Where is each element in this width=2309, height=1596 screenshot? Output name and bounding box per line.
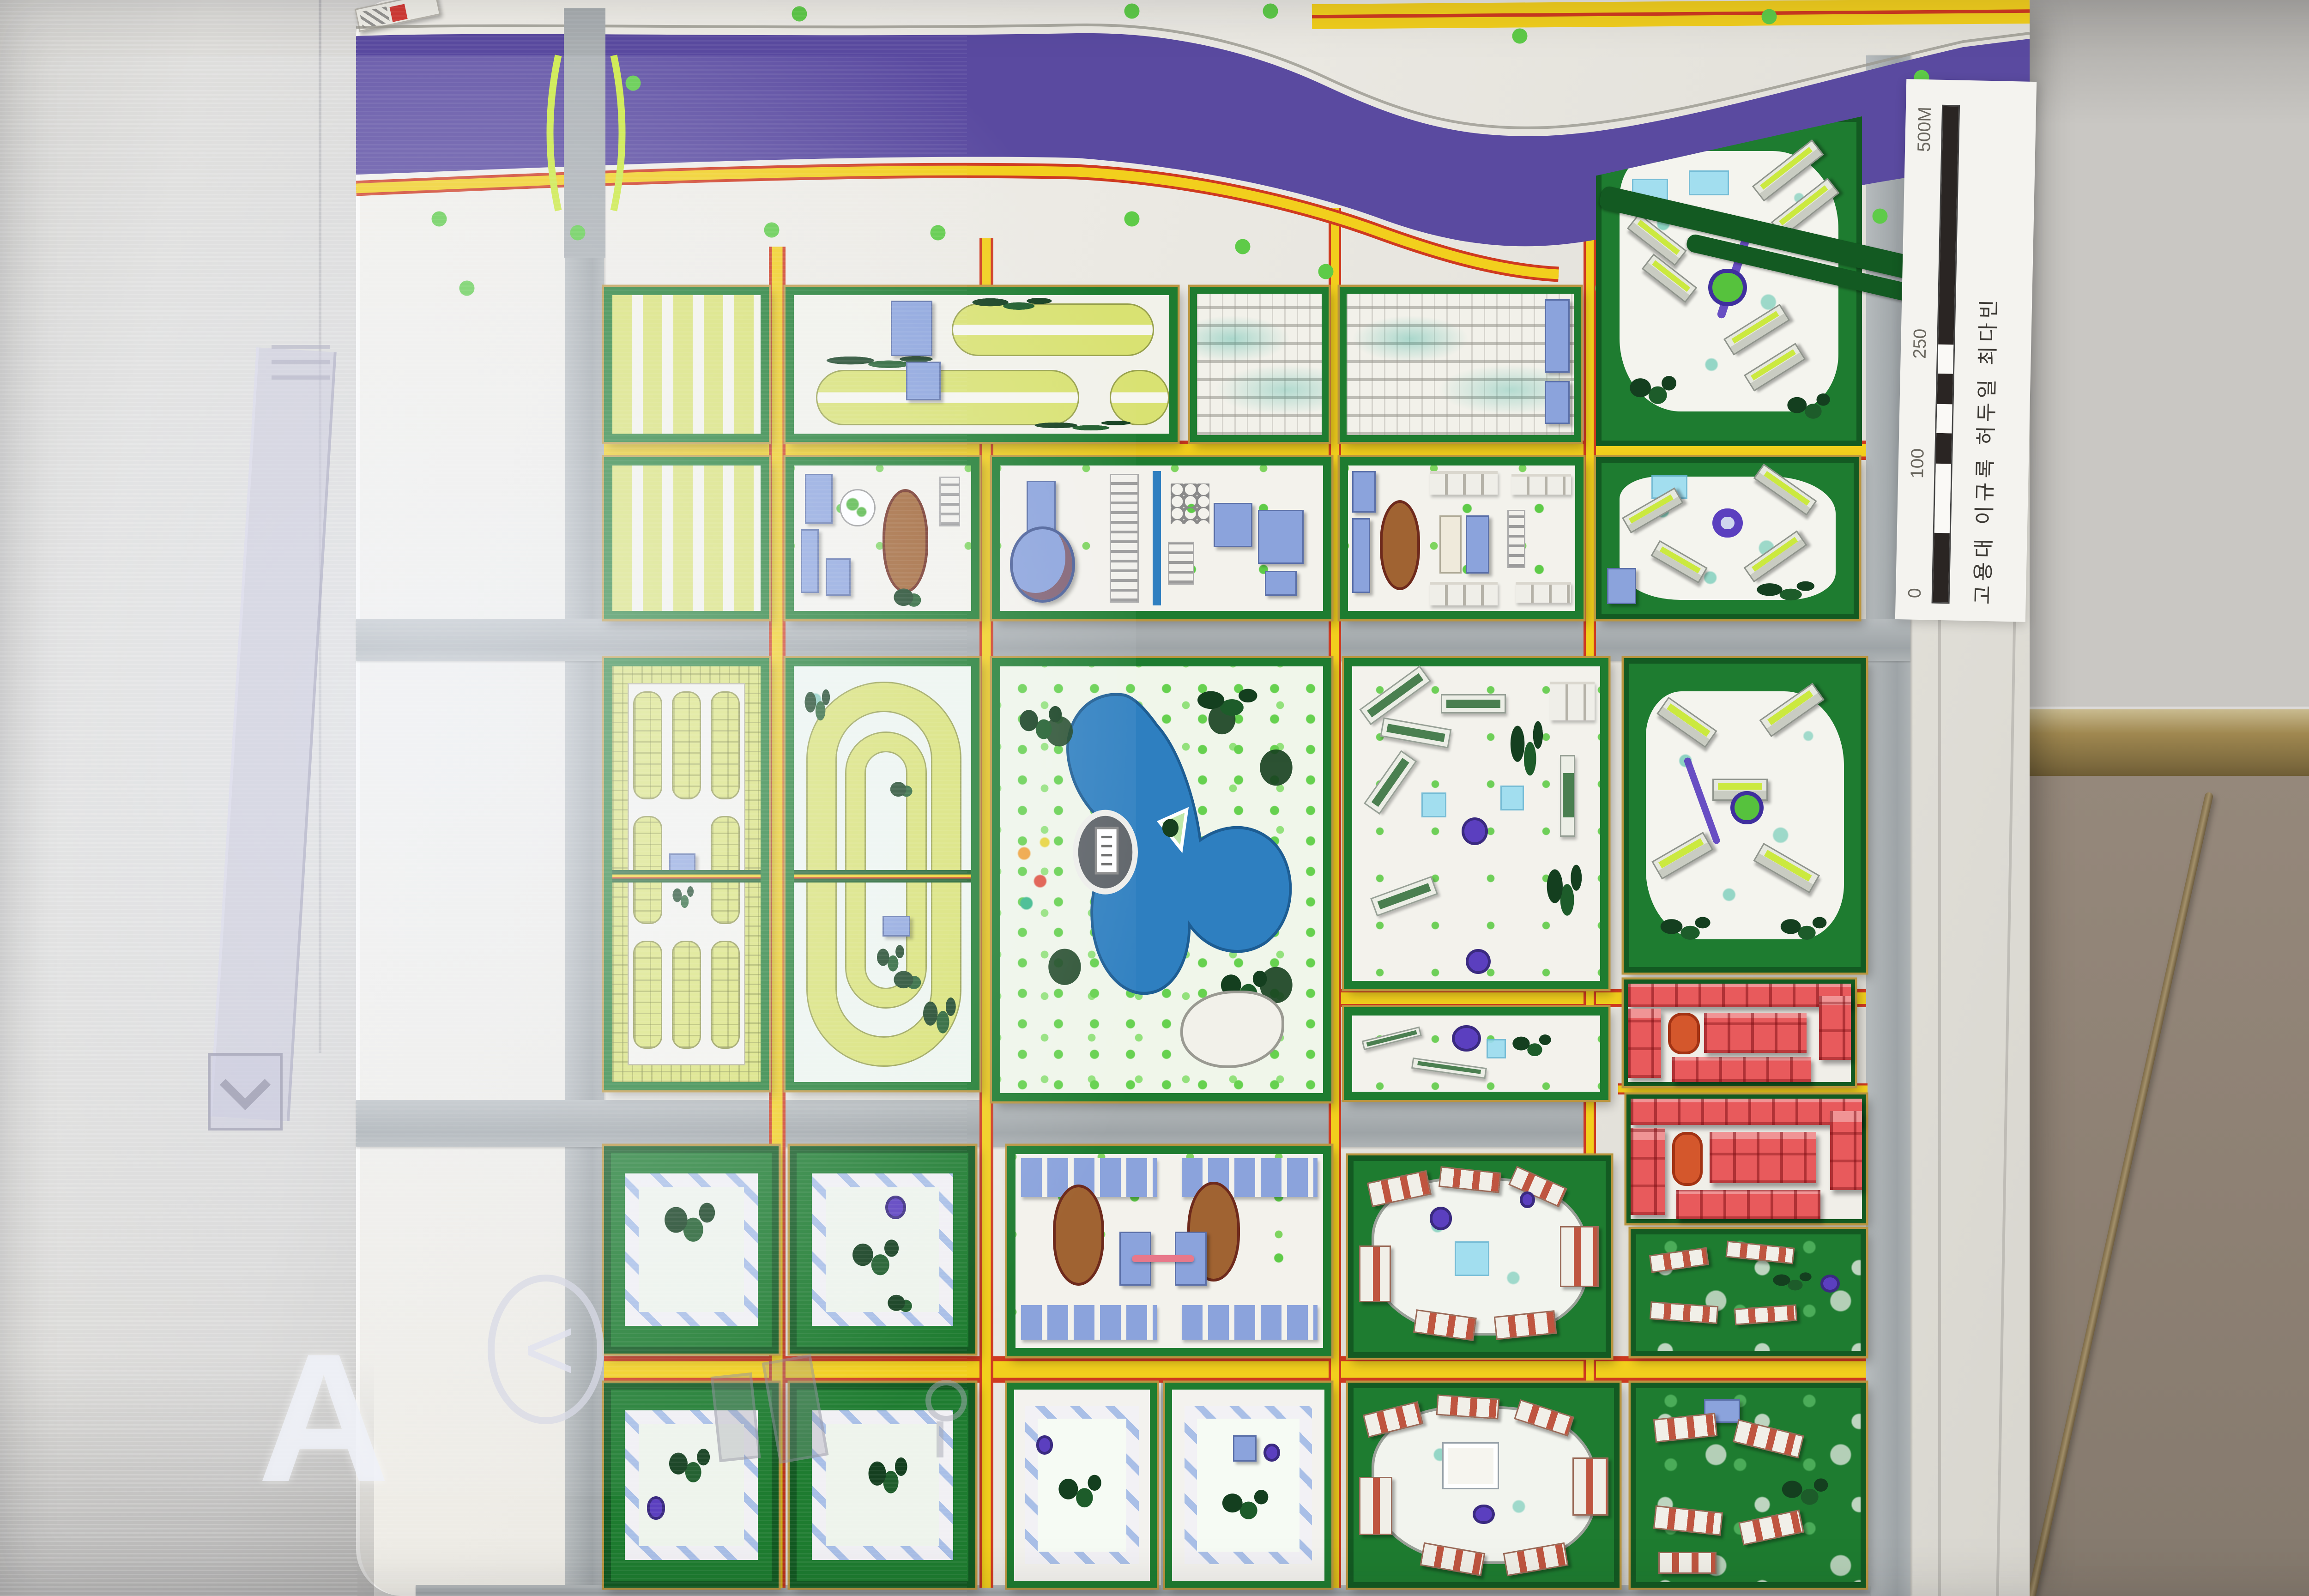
rs-feature — [1413, 1310, 1476, 1341]
rs-feature — [1649, 1302, 1717, 1325]
pdonut-feature — [1712, 508, 1742, 538]
central-park — [992, 658, 1331, 1101]
blue-feature — [1353, 518, 1371, 593]
trees-feature — [1775, 1474, 1838, 1516]
trees-feature — [1506, 1031, 1560, 1064]
rowsm-feature — [1430, 582, 1498, 605]
gslab-feature — [1371, 876, 1438, 916]
bottom-shadow — [0, 1358, 374, 1596]
trees-feature — [669, 883, 698, 916]
loop-feature — [816, 370, 1079, 425]
brown-feature — [1380, 501, 1421, 591]
rs-feature — [1653, 1412, 1718, 1442]
gslab-feature — [1359, 665, 1430, 724]
lavender-court-a — [1007, 1383, 1157, 1588]
islet-tree — [1163, 819, 1179, 837]
ave-row4 — [604, 1356, 1866, 1383]
trees-feature — [1622, 370, 1688, 415]
scale-bar-segment — [1937, 374, 1953, 404]
pdot-feature — [1820, 1274, 1840, 1293]
rs-feature — [1359, 1245, 1391, 1302]
hatchv-feature — [1168, 541, 1194, 585]
blue-feature — [826, 559, 851, 597]
cubebar-feature — [1709, 1132, 1815, 1183]
hatchv-feature — [939, 477, 961, 526]
blue-feature — [804, 474, 833, 524]
pdot-feature — [1520, 1191, 1535, 1209]
blue-feature — [891, 301, 932, 356]
cubebar-feature — [1673, 1057, 1811, 1082]
trees-feature — [801, 683, 836, 733]
blue-feature — [1466, 515, 1489, 573]
rs-feature — [1362, 1401, 1423, 1438]
hedge-feature — [612, 870, 761, 883]
pdot-feature — [647, 1497, 666, 1520]
racetrack-loop — [786, 658, 979, 1090]
roadside-tree-cluster — [885, 776, 924, 806]
lavender-court-b — [1165, 1383, 1331, 1588]
opad-feature — [1668, 1013, 1699, 1054]
rowhouse-district-a — [1190, 287, 1329, 442]
redstripe-loop-a — [1348, 1155, 1611, 1358]
court-feature — [1421, 792, 1446, 817]
gslab-feature — [1560, 755, 1575, 836]
pad-feature — [710, 691, 740, 799]
scale-bar-segment — [1938, 106, 1958, 345]
blue-feature — [801, 530, 818, 594]
trees-feature — [1780, 390, 1841, 428]
scale-tick-100: 100 — [1906, 448, 1928, 478]
road-horizontal-1 — [356, 619, 1910, 661]
pdot-feature — [886, 1195, 907, 1218]
cubebar-feature — [1631, 1128, 1665, 1215]
rs-feature — [1513, 1399, 1574, 1437]
rs-feature — [1572, 1458, 1609, 1516]
rowsm-feature — [1516, 582, 1571, 602]
courtyard-c — [604, 1383, 779, 1588]
scale-bar-segment — [1933, 532, 1950, 602]
slab-feature — [1651, 832, 1714, 881]
chalkboard — [2030, 776, 2309, 1596]
pdot-feature — [1473, 1505, 1494, 1524]
rs-feature — [1653, 1505, 1723, 1535]
courtyard-d — [790, 1383, 975, 1588]
rs-feature — [1367, 1170, 1431, 1207]
blue-feature — [1607, 568, 1637, 605]
rs-feature — [1439, 1166, 1501, 1193]
chalkboard-rail — [2030, 709, 2309, 779]
scale-tick-500M: 500M — [1913, 107, 1935, 152]
pdot-feature — [1036, 1435, 1053, 1454]
greenhouse-grid — [604, 658, 769, 1090]
gc-feature — [1731, 791, 1763, 824]
cubebar-feature — [1631, 1099, 1862, 1125]
redstripe-loop-b — [1348, 1383, 1620, 1588]
rs-feature — [1436, 1394, 1500, 1419]
cubebar-feature — [1628, 1009, 1661, 1078]
road-left-vertical — [565, 139, 604, 1596]
slab-feature — [1753, 843, 1819, 894]
blue-feature — [1258, 509, 1304, 565]
court-feature — [1486, 1039, 1506, 1058]
poster-crease — [1938, 582, 1941, 1596]
blue-feature — [1265, 570, 1297, 597]
pad-feature — [710, 941, 740, 1049]
trees-feature — [1019, 420, 1154, 434]
trees-feature — [845, 1234, 910, 1288]
school-pair — [1007, 1146, 1331, 1356]
blue-feature — [1544, 299, 1569, 373]
rowsm-feature — [1551, 682, 1596, 720]
blue-feature — [1544, 381, 1569, 424]
gslab-feature — [1363, 751, 1416, 815]
hatchv-feature — [1110, 474, 1139, 602]
play-feature — [1013, 820, 1058, 931]
trees-feature — [1773, 913, 1838, 949]
trees-feature — [656, 1195, 726, 1257]
trees-feature — [862, 1451, 917, 1508]
trees-feature — [1013, 701, 1071, 752]
hatchv-feature — [1507, 509, 1525, 568]
photo-of-city-model: 0100250500M 고용대 이규록 허두일 최다빈 A < — [0, 0, 2309, 1596]
brown-feature — [882, 489, 929, 593]
pdot-feature — [1429, 1207, 1452, 1230]
cream-feature — [1439, 515, 1462, 573]
blue-feature — [882, 916, 911, 937]
rs-feature — [1725, 1240, 1794, 1263]
scale-bar — [1932, 105, 1960, 604]
roadside-tree-cluster — [888, 964, 935, 1000]
trees-feature — [1766, 1270, 1820, 1297]
rowhouse-district-b — [1340, 287, 1581, 442]
court-feature — [1688, 170, 1729, 195]
blue-feature — [1233, 1435, 1256, 1462]
redstripe-small-b — [1631, 1383, 1866, 1588]
slab-feature — [1759, 683, 1824, 738]
rs-feature — [1649, 1247, 1709, 1274]
pdot-feature — [1466, 949, 1491, 974]
cubebar-feature — [1819, 996, 1851, 1061]
projector-screen — [0, 0, 416, 1596]
canal-feature — [1152, 472, 1162, 605]
redstripe-small-a — [1631, 1229, 1866, 1356]
roadside-tree-cluster — [882, 1288, 924, 1322]
gslab-feature — [1411, 1058, 1487, 1078]
rs-feature — [1359, 1477, 1392, 1536]
pad-feature — [671, 941, 701, 1049]
circ8-feature — [1171, 483, 1210, 524]
slab-district-b — [1344, 1007, 1608, 1100]
civic-school-b — [1340, 457, 1584, 619]
loop-feature — [1109, 370, 1169, 425]
gslab-feature — [1441, 695, 1506, 713]
trees-feature — [662, 1443, 720, 1497]
brown-feature — [1052, 1185, 1105, 1286]
trees-feature — [1215, 1485, 1279, 1531]
scale-tick-0: 0 — [1904, 588, 1925, 598]
pad-feature — [633, 941, 663, 1049]
rs-feature — [1420, 1542, 1485, 1576]
rs-feature — [1508, 1166, 1567, 1208]
courtyard-a — [604, 1146, 779, 1354]
blue-feature — [1213, 503, 1252, 547]
stad-feature — [1010, 526, 1075, 602]
bluerow-feature — [1022, 1306, 1157, 1341]
court-feature — [1454, 1241, 1489, 1276]
trees-feature — [1052, 1470, 1112, 1520]
cubebar-feature — [1830, 1111, 1862, 1190]
rs-feature — [1560, 1226, 1598, 1287]
trees-feature — [1187, 683, 1271, 726]
slab-feature — [1753, 464, 1818, 516]
scale-tick-labels: 0100250500M — [1904, 104, 1937, 604]
pdot-feature — [1263, 1443, 1280, 1462]
team-names-caption: 고용대 이규록 허두일 최다빈 — [1967, 97, 2007, 605]
bluerow-feature — [1182, 1306, 1317, 1341]
slab-feature — [1724, 303, 1790, 355]
slab-feature — [1744, 343, 1806, 392]
gc-feature — [1709, 268, 1747, 307]
rs-feature — [1503, 1542, 1569, 1576]
star-superblock-c — [1624, 658, 1866, 973]
rs-feature — [1659, 1551, 1717, 1574]
trees-feature — [1506, 710, 1551, 798]
projected-window-edge — [319, 0, 321, 1053]
city-model-board — [356, 0, 2030, 1596]
red-cubes-b — [1626, 1094, 1866, 1223]
slab-feature — [1743, 530, 1807, 583]
pad-feature — [633, 691, 663, 799]
civic-center — [992, 457, 1331, 619]
star-superblock-b — [1596, 457, 1859, 619]
gslab-feature — [1381, 717, 1452, 748]
blue-feature — [1353, 472, 1375, 512]
industrial-strips-b — [604, 457, 769, 619]
rowsm-feature — [1430, 472, 1498, 495]
cubebar-feature — [1628, 984, 1851, 1007]
hairpin-rows — [786, 287, 1178, 442]
industrial-strips-a — [604, 287, 769, 442]
slab-district-a — [1344, 658, 1608, 989]
pdot-feature — [1461, 817, 1488, 846]
road-horizontal-2 — [356, 1100, 1584, 1147]
bridgep-feature — [1132, 1255, 1194, 1263]
opad-feature — [1672, 1132, 1702, 1185]
rs-feature — [1735, 1305, 1798, 1325]
rs-feature — [1493, 1311, 1556, 1340]
rowsm-feature — [1511, 474, 1571, 495]
river-bridge-road — [564, 8, 605, 258]
scale-bar-segment — [1936, 434, 1952, 464]
trees-feature — [1748, 577, 1829, 607]
trees-feature — [1652, 913, 1722, 949]
cubebar-feature — [1677, 1190, 1820, 1219]
pdot-feature — [1451, 1025, 1481, 1052]
courtyard-b — [790, 1146, 975, 1354]
roadside-tree-cluster — [888, 582, 935, 618]
scale-bar-segment — [1936, 404, 1952, 434]
pad-feature — [671, 691, 701, 799]
rs-feature — [1733, 1419, 1804, 1458]
scale-bar-segment — [1934, 463, 1951, 533]
trees-feature — [1541, 855, 1590, 937]
civic-school-a — [786, 457, 979, 619]
ctrees-feature — [840, 489, 876, 526]
scale-bar-panel: 0100250500M 고용대 이규록 허두일 최다빈 — [1895, 79, 2037, 622]
scale-tick-250: 250 — [1909, 328, 1930, 359]
trees-feature — [959, 295, 1072, 314]
gslab-feature — [1362, 1027, 1422, 1050]
wsq-feature — [1442, 1443, 1499, 1489]
island-sign — [1096, 828, 1118, 874]
slab-feature — [1656, 697, 1718, 749]
hedge-feature — [794, 870, 971, 883]
scale-bar-segment — [1938, 344, 1953, 374]
blue-feature — [907, 362, 940, 400]
red-cubes-a — [1624, 979, 1855, 1086]
cubebar-feature — [1704, 1013, 1806, 1052]
slab-feature — [1651, 541, 1708, 584]
